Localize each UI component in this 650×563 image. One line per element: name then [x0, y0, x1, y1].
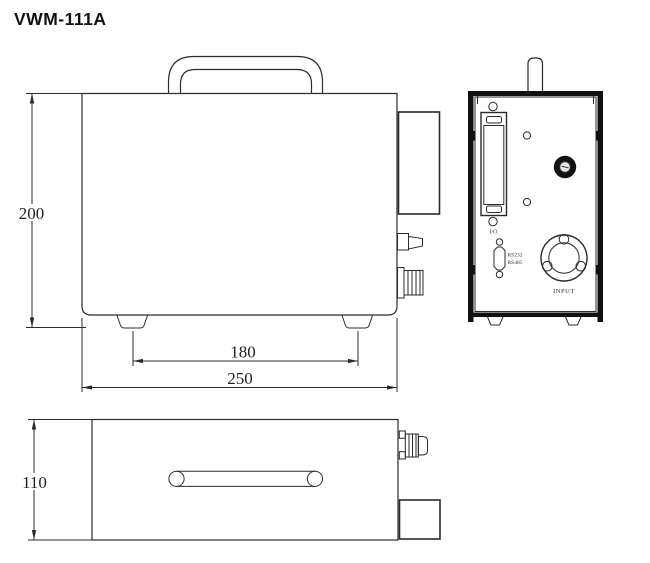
frame-bottom-bar	[473, 313, 598, 318]
rs485-label: RS485	[508, 260, 523, 266]
dim-label-180: 180	[230, 343, 256, 362]
dim-label-110: 110	[22, 473, 47, 492]
foot-left	[117, 316, 148, 329]
side-module-box	[399, 112, 440, 214]
page-title: VWM-111A	[14, 9, 107, 29]
frame-top-bar	[468, 91, 603, 96]
carry-handle-top	[169, 471, 323, 486]
screw-hole	[489, 217, 497, 225]
serial-connector: RS232 RS485	[494, 239, 523, 278]
dimension-height-200: 200	[16, 94, 86, 328]
enclosure-top-outline	[92, 420, 398, 541]
technical-drawing: VWM-111A	[0, 0, 650, 563]
dimension-feet-180: 180	[133, 331, 358, 366]
front-view: 200 180 250	[16, 57, 440, 393]
enclosure-body	[82, 94, 397, 316]
threaded-connector-top	[399, 431, 427, 459]
frame-left-rail	[468, 91, 474, 322]
fuse-holder	[554, 156, 576, 178]
foot-left	[488, 317, 504, 325]
input-label: INPUT	[553, 288, 575, 295]
screw-hole	[523, 132, 530, 139]
io-connector: I/O	[481, 102, 507, 235]
drawing-page: VWM-111A	[0, 0, 650, 563]
rail-notch	[472, 265, 476, 275]
pin-hole	[576, 261, 586, 271]
input-connector: INPUT	[541, 235, 587, 296]
threaded-connector	[398, 268, 424, 299]
screw-hole	[489, 102, 497, 110]
io-label: I/O	[490, 230, 499, 236]
top-view: 110	[19, 420, 440, 541]
carry-handle-front	[169, 57, 323, 94]
screw-hole	[496, 271, 502, 277]
frame-right-rail	[598, 91, 604, 322]
side-view: I/O RS232 RS485 INPUT	[468, 58, 603, 325]
dim-label-250: 250	[227, 369, 253, 388]
rs232-label: RS232	[508, 253, 523, 259]
foot-right	[342, 316, 373, 329]
screw-hole	[496, 239, 502, 245]
dimension-depth-110: 110	[19, 420, 92, 541]
rail-notch	[596, 265, 600, 275]
foot-right	[566, 317, 582, 325]
dim-label-200: 200	[19, 204, 45, 223]
nozzle-connector	[398, 234, 423, 251]
rail-notch	[596, 131, 600, 141]
carry-handle-side	[528, 58, 543, 92]
screw-hole	[523, 198, 530, 205]
side-module-top	[400, 500, 441, 539]
rail-notch	[472, 131, 476, 141]
